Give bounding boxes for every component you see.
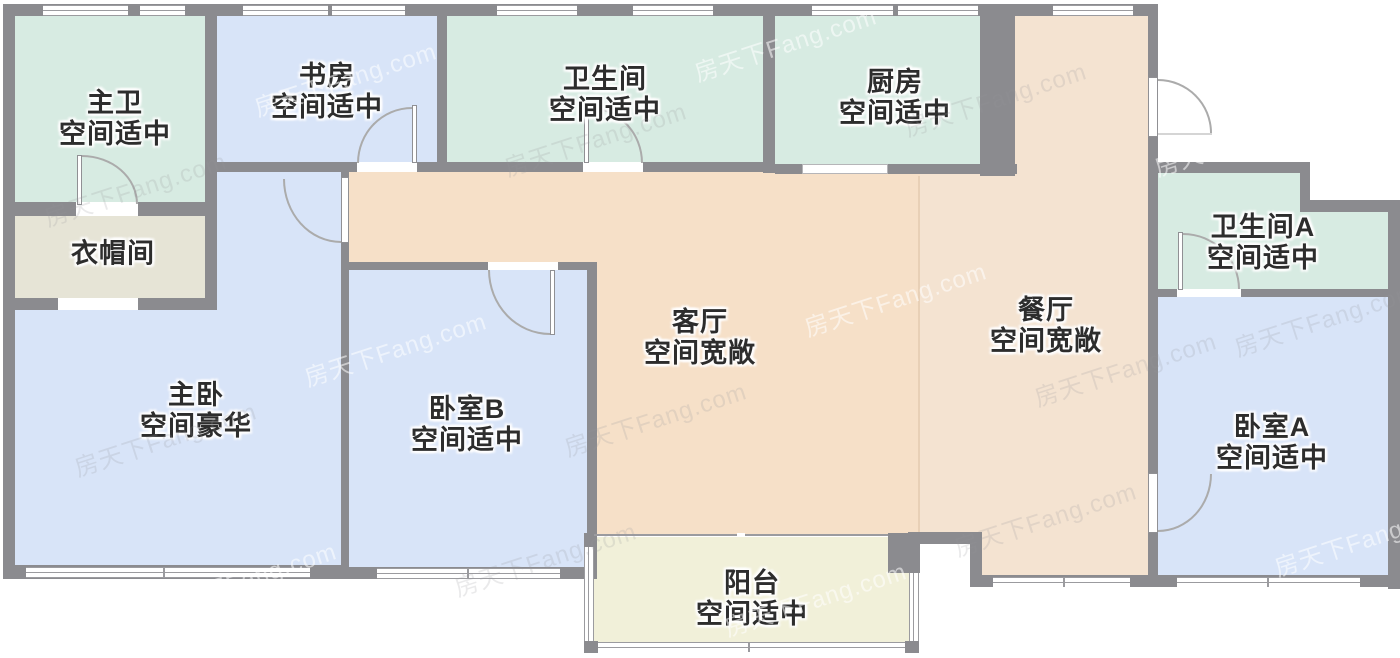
wall-masterbath-study: [205, 4, 217, 310]
opening-kitchen: [802, 164, 888, 174]
window: [26, 567, 310, 578]
balcony-corner-br: [905, 641, 919, 653]
label-balcony: 阳台 空间适中: [696, 568, 808, 630]
room-name: 阳台: [696, 568, 808, 599]
entrance-threshold: [1158, 133, 1212, 135]
entrance-door-arc: [1158, 79, 1212, 133]
window: [993, 577, 1130, 587]
room-condition: 空间适中: [59, 119, 171, 150]
window: [243, 5, 328, 16]
room-name: 卫生间A: [1207, 212, 1319, 243]
wall-study-bathroom: [437, 4, 447, 172]
opening-cloakroom: [58, 298, 138, 310]
room-name: 卧室B: [411, 394, 523, 425]
window: [633, 5, 713, 16]
wall-left: [3, 4, 15, 579]
room-condition: 空间适中: [271, 92, 383, 123]
bedroom-b-door-panel: [550, 270, 555, 335]
wall-bathroom-kitchen: [763, 4, 775, 173]
room-condition: 空间适中: [696, 599, 808, 630]
label-bathroom-a: 卫生间A 空间适中: [1207, 212, 1319, 274]
room-condition: 空间宽敞: [644, 338, 756, 369]
room-name: 卧室A: [1216, 412, 1328, 443]
room-name: 主卧: [140, 380, 252, 411]
label-kitchen: 厨房 空间适中: [839, 67, 951, 129]
study-door-panel: [412, 105, 417, 163]
room-name: 厨房: [839, 67, 951, 98]
window-mullion: [163, 567, 165, 578]
room-name: 书房: [271, 61, 383, 92]
window-mullion: [1063, 577, 1065, 587]
room-dining-north: [1015, 16, 1148, 176]
wall-bathrooma-step-h: [1300, 200, 1400, 212]
room-condition: 空间适中: [1216, 443, 1328, 474]
room-condition: 空间适中: [549, 95, 661, 126]
window: [898, 5, 978, 16]
label-bedroom-a: 卧室A 空间适中: [1216, 412, 1328, 474]
window: [812, 5, 893, 16]
label-dining: 餐厅 空间宽敞: [990, 295, 1102, 357]
window: [140, 5, 185, 16]
label-study: 书房 空间适中: [271, 61, 383, 123]
room-name: 主卫: [59, 88, 171, 119]
room-condition: 空间适中: [839, 98, 951, 129]
label-cloakroom: 衣帽间: [71, 239, 155, 270]
window-mullion: [467, 568, 469, 579]
floor-plan: 主卫 空间适中 衣帽间 书房 空间适中 卫生间 空间适中 厨房 空间适中 卫生间…: [0, 0, 1400, 658]
room-name: 卫生间: [549, 64, 661, 95]
room-name: 客厅: [644, 307, 756, 338]
room-name: 衣帽间: [71, 239, 155, 270]
room-living-hall: [349, 172, 597, 262]
opening-bedroom-b-door: [488, 262, 558, 270]
window: [43, 5, 128, 16]
master-suite-door-panel: [341, 177, 349, 243]
entrance-door-panel: [1148, 77, 1158, 137]
window: [1053, 5, 1133, 16]
window-mullion: [748, 642, 750, 652]
living-dining-divider: [918, 176, 920, 534]
wall-kitchen-dining-thick: [980, 13, 1015, 176]
wall-bathrooma-north: [1148, 162, 1310, 173]
bedroom-a-door-panel: [1148, 473, 1158, 533]
wall-bedroomb-living: [587, 262, 597, 577]
label-bathroom: 卫生间 空间适中: [549, 64, 661, 126]
wall-bedroomb-north: [341, 262, 597, 270]
opening-master-bath-door: [76, 202, 138, 216]
balcony-corner-bl: [584, 641, 598, 653]
label-living: 客厅 空间宽敞: [644, 307, 756, 369]
opening-study-door: [357, 162, 417, 172]
wall-right: [1388, 200, 1400, 589]
exterior-notch: [919, 544, 971, 588]
room-dining: [920, 172, 1148, 575]
window-mullion: [1267, 577, 1269, 587]
balcony-slider-gap: [737, 533, 745, 537]
window: [497, 5, 577, 16]
window: [332, 5, 405, 16]
room-condition: 空间豪华: [140, 411, 252, 442]
room-name: 餐厅: [990, 295, 1102, 326]
label-bedroom-b: 卧室B 空间适中: [411, 394, 523, 456]
opening-bathroom-a-door: [1177, 289, 1241, 297]
room-condition: 空间适中: [411, 425, 523, 456]
room-condition: 空间适中: [1207, 243, 1319, 274]
room-condition: 空间宽敞: [990, 326, 1102, 357]
opening-bathroom-door: [583, 162, 643, 172]
window: [598, 642, 905, 652]
window: [584, 547, 594, 641]
window: [909, 573, 919, 641]
label-master-bedroom: 主卧 空间豪华: [140, 380, 252, 442]
label-master-bath: 主卫 空间适中: [59, 88, 171, 150]
wall-entry-upper: [1148, 13, 1158, 77]
balcony-corner-tr: [888, 533, 920, 573]
